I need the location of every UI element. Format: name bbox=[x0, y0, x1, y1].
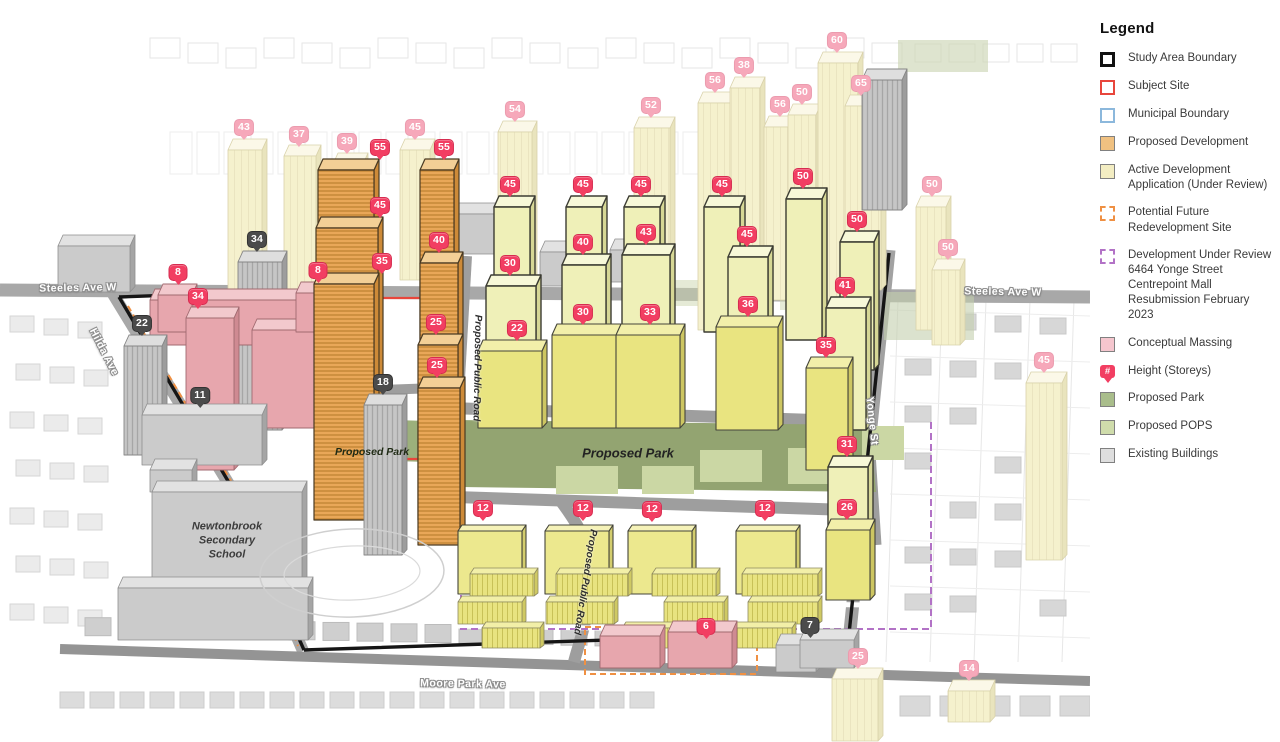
legend-title: Legend bbox=[1100, 20, 1272, 37]
legend-item-development-under-review: Development Under Review 6464 Yonge Stre… bbox=[1100, 248, 1272, 324]
legend-item-label: Municipal Boundary bbox=[1128, 107, 1229, 122]
site-plan-figure: 5555454035252545302245403045433345453650… bbox=[0, 0, 1280, 742]
legend-item-subject-site: Subject Site bbox=[1100, 79, 1272, 95]
legend-item-conceptual-massing: Conceptual Massing bbox=[1100, 336, 1272, 352]
legend-items: Study Area BoundarySubject SiteMunicipal… bbox=[1100, 51, 1272, 463]
legend-item-label: Subject Site bbox=[1128, 79, 1189, 94]
proposed-pops-swatch bbox=[1100, 420, 1115, 435]
proposed-park-swatch bbox=[1100, 392, 1115, 407]
proposed-development-swatch bbox=[1100, 136, 1115, 151]
legend-item-label: Proposed Park bbox=[1128, 391, 1204, 406]
legend-item-label: Existing Buildings bbox=[1128, 447, 1218, 462]
legend-item-label: Study Area Boundary bbox=[1128, 51, 1237, 66]
legend-item-label: Proposed POPS bbox=[1128, 419, 1212, 434]
legend-item-label: Development Under Review 6464 Yonge Stre… bbox=[1128, 248, 1271, 324]
legend-item-proposed-park: Proposed Park bbox=[1100, 391, 1272, 407]
subject-site-swatch bbox=[1100, 80, 1115, 95]
site-plan-scene bbox=[0, 0, 1090, 742]
legend-item-existing-buildings: Existing Buildings bbox=[1100, 447, 1272, 463]
active-development-application-swatch bbox=[1100, 164, 1115, 179]
legend-item-label: Active Development Application (Under Re… bbox=[1128, 163, 1272, 193]
legend-item-proposed-development: Proposed Development bbox=[1100, 135, 1272, 151]
legend-item-label: Proposed Development bbox=[1128, 135, 1248, 150]
legend-item-label: Conceptual Massing bbox=[1128, 336, 1232, 351]
existing-buildings-swatch bbox=[1100, 448, 1115, 463]
municipal-boundary-swatch bbox=[1100, 108, 1115, 123]
conceptual-massing-swatch bbox=[1100, 337, 1115, 352]
legend-item-active-development-application: Active Development Application (Under Re… bbox=[1100, 163, 1272, 193]
legend-item-municipal-boundary: Municipal Boundary bbox=[1100, 107, 1272, 123]
legend-item-study-area-boundary: Study Area Boundary bbox=[1100, 51, 1272, 67]
legend-item-potential-future-redevelopment-site: Potential Future Redevelopment Site bbox=[1100, 205, 1272, 235]
legend-item-proposed-pops: Proposed POPS bbox=[1100, 419, 1272, 435]
legend-item-label: Height (Storeys) bbox=[1128, 364, 1211, 379]
study-area-boundary-swatch bbox=[1100, 52, 1115, 67]
legend-item-height-storeys: #Height (Storeys) bbox=[1100, 364, 1272, 379]
legend-panel: Legend Study Area BoundarySubject SiteMu… bbox=[1100, 20, 1272, 475]
height-storeys-swatch: # bbox=[1100, 365, 1115, 378]
potential-future-redevelopment-site-swatch bbox=[1100, 206, 1115, 221]
legend-item-label: Potential Future Redevelopment Site bbox=[1128, 205, 1272, 235]
map-canvas: 5555454035252545302245403045433345453650… bbox=[0, 0, 1100, 742]
development-under-review-swatch bbox=[1100, 249, 1115, 264]
